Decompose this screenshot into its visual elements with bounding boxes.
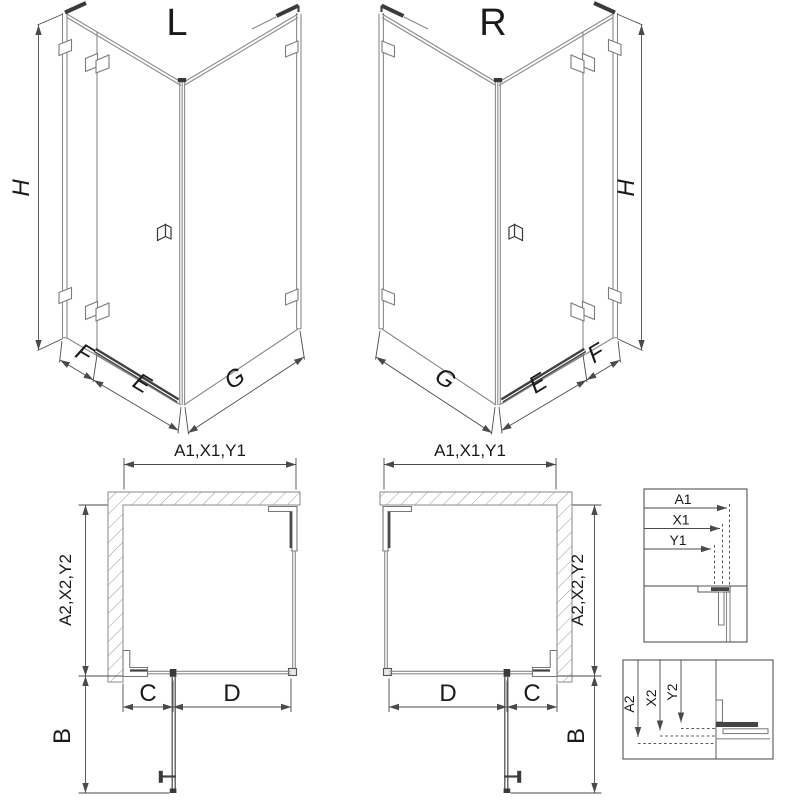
plan-width-label-right: A1,X1,Y1 — [434, 441, 506, 460]
variant-title-right: R — [479, 2, 506, 44]
segment-c-label-left: C — [139, 680, 156, 707]
dim-label-g-right: G — [430, 362, 460, 395]
corner-cap — [178, 78, 186, 82]
door-opening-label-right: B — [563, 728, 590, 744]
detail-x1-label: X1 — [672, 512, 689, 528]
plan-door-handle-knob — [159, 771, 163, 783]
door-opening-label-left: B — [49, 728, 76, 744]
door-handle — [158, 225, 172, 241]
corner-profile-cap — [289, 669, 297, 676]
plan-left-walls-hatched — [108, 492, 300, 682]
detail-y1-label: Y1 — [669, 532, 686, 548]
segment-c-label-right: C — [523, 680, 540, 707]
plan-depth-label-left: A2,X2,Y2 — [56, 554, 75, 626]
door-wall-plan — [123, 651, 291, 794]
plan-right-walls-hatched — [380, 492, 572, 682]
segment-d-label-left: D — [223, 680, 240, 707]
detail-a1-label: A1 — [674, 491, 691, 507]
side-panel-plan — [269, 507, 298, 676]
iso-dimension-lines — [38, 14, 305, 435]
detail-x2-label: X2 — [643, 689, 659, 706]
technical-drawing-page: L R H H F E G F E G A1,X1,Y1 A1,X1,Y1 A2… — [0, 0, 800, 800]
dim-label-height-right: H — [613, 179, 640, 197]
dim-label-g-left: G — [220, 362, 250, 395]
detail-view-depth — [623, 660, 773, 759]
detail-y2-label: Y2 — [664, 683, 680, 700]
door-end-cap — [170, 789, 177, 794]
plan-width-label-left: A1,X1,Y1 — [174, 441, 246, 460]
isometric-view-right-mirrored — [376, 3, 643, 435]
segment-d-label-right: D — [439, 680, 456, 707]
isometric-view-left — [38, 3, 305, 435]
detail-a2-label: A2 — [621, 695, 637, 712]
shower-enclosure-drawing: L R H H F E G F E G A1,X1,Y1 A1,X1,Y1 A2… — [0, 0, 800, 800]
detail-view-width — [644, 489, 747, 642]
door-pivot — [170, 669, 177, 677]
plan-depth-label-right: A2,X2,Y2 — [568, 554, 587, 626]
variant-title-left: L — [166, 2, 187, 44]
dim-label-height-left: H — [8, 179, 35, 197]
